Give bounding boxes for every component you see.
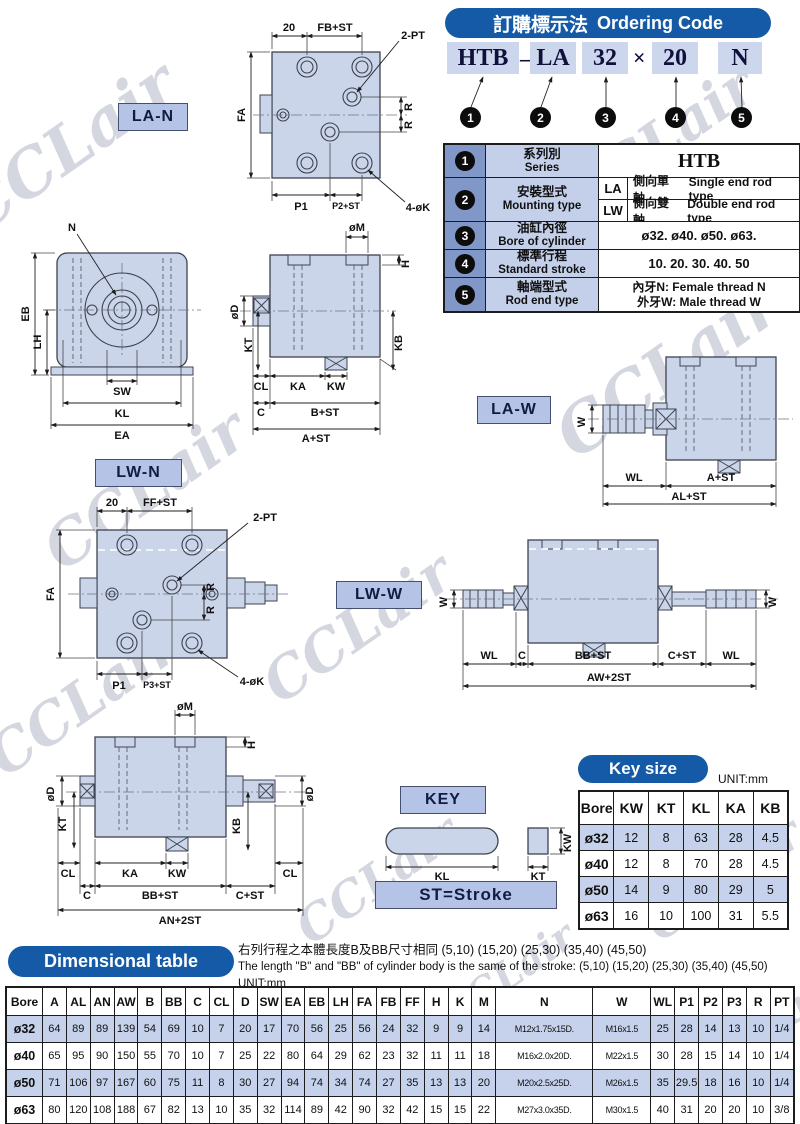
cell: 8 [210,1070,234,1097]
col-header: SW [257,987,281,1016]
diagram-lw-side-view: øM H øD øD KT KB CL KA KW CL C BB+ST C+S… [18,698,330,928]
spec-num: 3 [445,222,486,249]
diagram-label-la-n: LA-N [118,103,188,131]
dim-label: P1 [112,680,125,692]
cell: 89 [66,1016,90,1043]
dim-label: LH [32,335,44,350]
cell: 55 [138,1043,162,1070]
side-tab-left [80,578,97,608]
dim-label: KB [393,335,405,351]
cell: 139 [114,1016,138,1043]
cell: 108 [90,1097,114,1124]
cell: 42 [400,1097,424,1124]
cell: 20 [722,1097,746,1124]
code-times: × [633,45,646,71]
cell: 32 [400,1016,424,1043]
cell: 31 [718,903,753,930]
ordering-code-title: 訂購標示法 Ordering Code [445,8,771,38]
cell: 67 [138,1097,162,1124]
dim-label: CL [61,868,76,880]
dim-label: R [403,121,415,129]
cell: 3/8 [770,1097,794,1124]
cell: 95 [66,1043,90,1070]
cylinder-body [270,255,380,357]
spec-value: HTB [599,145,799,177]
side-tab-right [227,578,245,608]
dimensional-table-title: Dimensional table [8,946,234,977]
cell: 7 [210,1016,234,1043]
arrow-lines [471,77,742,107]
spec-label: 標準行程Standard stroke [486,250,599,277]
cell: 14 [699,1016,723,1043]
cell: 106 [66,1070,90,1097]
ordering-bullet-1: 1 [460,107,481,128]
ordering-bullet-2: 2 [530,107,551,128]
dim-label: 2-PT [253,512,277,524]
diagram-la-n-top-view: 20 FB+ST 2-PT FA R R P1 P2+ST 4-øK [215,5,445,217]
dim-label: AW+2ST [587,672,632,684]
cell: 56 [305,1016,329,1043]
cell: M27x3.0x35D. [496,1097,593,1124]
cell: 10 [649,903,684,930]
col-header: KB [753,791,788,825]
col-header: D [233,987,257,1016]
cell: 10 [186,1043,210,1070]
cell: 4.5 [753,825,788,851]
cell: 25 [329,1016,353,1043]
diagram-label-lw-w: LW-W [336,581,422,609]
spec-label: 安裝型式Mounting type [486,178,599,221]
key-size-title: Key size [578,755,708,783]
cell: 13 [722,1016,746,1043]
cell: M16x1.5 [593,1016,651,1043]
cell: 30 [233,1070,257,1097]
cell: 31 [675,1097,699,1124]
col-header: CL [210,987,234,1016]
cell: 82 [162,1097,186,1124]
cell: 65 [43,1043,67,1070]
cell: 90 [90,1043,114,1070]
code-bore: 32 [582,42,628,74]
header-row: BoreAALANAWBBBCCLDSWEAEBLHFAFBFFHKMNWWLP… [6,987,794,1016]
diagram-la-n-side-view: øM H øD KT CL KA KW KB C B+ST A+ST [228,213,430,465]
key-shape [386,828,498,854]
row-label: ø32 [579,825,614,851]
header-row: BoreKWKTKLKAKB [579,791,788,825]
col-header: P2 [699,987,723,1016]
dim-label: BB+ST [575,650,612,662]
col-header: EB [305,987,329,1016]
cell: 25 [233,1043,257,1070]
row-label: ø40 [6,1043,43,1070]
code-mounting: LA [530,42,576,74]
dim-label: C+ST [668,650,697,662]
cell: 29 [718,877,753,903]
cell: 10 [746,1043,770,1070]
dim-label: 2-PT [401,30,425,42]
col-header: EA [281,987,305,1016]
cell: 167 [114,1070,138,1097]
cell: 89 [90,1016,114,1043]
cell: 13 [186,1097,210,1124]
col-header: BB [162,987,186,1016]
cell: 9 [448,1016,472,1043]
cell: 4.5 [753,851,788,877]
cell: 30 [651,1043,675,1070]
spec-row-mounting: 2 安裝型式Mounting type LA 側向單軸Single end ro… [445,178,799,222]
dim-label: KW [327,381,346,393]
dim-label: KT [243,337,255,352]
col-header: W [593,987,651,1016]
dim-label: WL [625,472,642,484]
dim-label: FA [45,587,57,601]
cell: 27 [377,1070,401,1097]
cell: 74 [353,1070,377,1097]
cell: 11 [448,1043,472,1070]
cell: 94 [281,1070,305,1097]
dim-label: B+ST [311,407,340,419]
ordering-bullet-4: 4 [665,107,686,128]
cell: 7 [210,1043,234,1070]
cell: 10 [746,1070,770,1097]
dim-label: EA [114,430,129,442]
cell: 114 [281,1097,305,1124]
diagram-lw-n-top-view: 20 FF+ST 2-PT FA R R P1 P3+ST 4-øK [20,455,312,707]
dim-label: CL [254,381,269,393]
stroke-note: ST=Stroke [375,881,557,909]
spec-value: LA 側向單軸Single end rod type LW 側向雙軸Double… [599,178,799,221]
cell: 20 [699,1097,723,1124]
spec-num: 2 [445,178,486,221]
table-row: ø507110697167607511830279474347427351313… [6,1070,794,1097]
cell: 28 [718,825,753,851]
cell: 20 [233,1016,257,1043]
spec-label: 系列別Series [486,145,599,177]
dim-label: C [257,407,265,419]
col-header: B [138,987,162,1016]
dim-label: R [205,583,217,591]
cell: 16 [722,1070,746,1097]
spec-num: 5 [445,278,486,311]
spec-value: 內牙N: Female thread N 外牙W: Male thread W [599,278,799,311]
cell: M20x2.5x25D. [496,1070,593,1097]
dim-label: øM [349,222,365,234]
dim-label: C+ST [236,890,265,902]
cell: 27 [257,1070,281,1097]
dim-label: FF+ST [143,497,177,509]
table-row: ø32648989139546910720177056255624329914M… [6,1016,794,1043]
cell: 54 [138,1016,162,1043]
dim-label: P3+ST [143,680,171,690]
table-row: ø638012010818867821310353211489429032421… [6,1097,794,1124]
cell: 23 [377,1043,401,1070]
dim-label: P1 [294,201,307,213]
cell: 35 [651,1070,675,1097]
cell: 1/4 [770,1016,794,1043]
dim-label: AL+ST [671,491,706,503]
dim-label: øD [229,305,241,320]
cell: 22 [257,1043,281,1070]
series-spec-table: 1 系列別Series HTB 2 安裝型式Mounting type LA 側… [443,143,800,313]
cell: 18 [699,1070,723,1097]
code-stroke: 20 [652,42,698,74]
diagram-front-view: N EB LH SW KL EA [15,218,240,450]
col-header: FA [353,987,377,1016]
diagram-label-la-w: LA-W [477,396,551,424]
dim-label: A+ST [302,433,331,445]
col-header: M [472,987,496,1016]
dim-label: EB [20,306,32,321]
diagram-label-key: KEY [400,786,486,814]
cell: 28 [675,1016,699,1043]
cell: 89 [305,1097,329,1124]
base-plate [51,367,193,375]
cell: 70 [162,1043,186,1070]
cell: 75 [162,1070,186,1097]
cell: 80 [281,1043,305,1070]
dimensional-note: 右列行程之本體長度B及BB尺寸相同 (5,10) (15,20) (25,30)… [238,941,798,992]
cell: 9 [424,1016,448,1043]
cell: 34 [329,1070,353,1097]
cell: 150 [114,1043,138,1070]
dim-label: BB+ST [142,890,179,902]
cell: 16 [614,903,649,930]
cell: M22x1.5 [593,1043,651,1070]
cell: 22 [472,1097,496,1124]
cell: 11 [186,1070,210,1097]
cell: M30x1.5 [593,1097,651,1124]
cell: 63 [683,825,718,851]
col-header: N [496,987,593,1016]
cell: M26x1.5 [593,1070,651,1097]
cell: 12 [614,851,649,877]
note-zh: 右列行程之本體長度B及BB尺寸相同 (5,10) (15,20) (25,30)… [238,941,798,959]
spec-label: 軸端型式Rod end type [486,278,599,311]
dim-label: SW [113,386,131,398]
dim-label: R [403,103,415,111]
cell: 120 [66,1097,90,1124]
cell: 14 [472,1016,496,1043]
col-header: H [424,987,448,1016]
cell: 14 [614,877,649,903]
row-label: ø50 [579,877,614,903]
diagram-lw-w-view: W WL C BB+ST C+ST WL W AW+2ST [428,538,800,700]
cell: 28 [675,1043,699,1070]
cell: 90 [353,1097,377,1124]
dim-label: KA [122,868,138,880]
cell: 5 [753,877,788,903]
dim-label: H [246,741,258,749]
cell: 10 [186,1016,210,1043]
ordering-title-en: Ordering Code [597,13,723,34]
dimensional-table: BoreAALANAWBBBCCLDSWEAEBLHFAFBFFHKMNWWLP… [5,986,795,1124]
dim-label: FA [236,108,248,122]
cell: 12 [614,825,649,851]
row-label: ø40 [579,851,614,877]
dim-label: KT [57,816,69,831]
cell: 70 [683,851,718,877]
cell: 8 [649,851,684,877]
cell: 17 [257,1016,281,1043]
col-header: P3 [722,987,746,1016]
side-tab [260,95,272,133]
table-row: ø406595901505570107252280642962233211111… [6,1043,794,1070]
ordering-bullet-3: 3 [595,107,616,128]
dim-label: 20 [283,22,295,34]
cell: 15 [424,1097,448,1124]
row-label: ø32 [6,1016,43,1043]
cylinder-body [528,540,658,643]
spec-row-rodend: 5 軸端型式Rod end type 內牙N: Female thread N … [445,278,799,311]
mounting-lw: LW 側向雙軸Double end rod type [599,200,799,221]
cell: 29 [329,1043,353,1070]
cell: 56 [353,1016,377,1043]
dim-label: KL [115,408,130,420]
dim-label: C [83,890,91,902]
col-header: R [746,987,770,1016]
dim-label: C [518,650,526,662]
cell: 100 [683,903,718,930]
cell: 71 [43,1070,67,1097]
cell: 97 [90,1070,114,1097]
cell: 35 [233,1097,257,1124]
cylinder-body [95,737,226,837]
diagram-label-lw-n: LW-N [95,459,182,487]
dim-label: WL [722,650,739,662]
spec-row-bore: 3 油缸內徑Bore of cylinder ø32. ø40. ø50. ø6… [445,222,799,250]
dim-label: øM [177,701,193,713]
dim-label: R [205,606,217,614]
cell: 11 [424,1043,448,1070]
row-label: ø63 [6,1097,43,1124]
col-header: Bore [579,791,614,825]
cell: 1/4 [770,1043,794,1070]
dim-label: W [767,596,779,607]
dim-label: 20 [106,497,118,509]
ordering-bullet-5: 5 [731,107,752,128]
col-header: Bore [6,987,43,1016]
spec-row-series: 1 系列別Series HTB [445,145,799,178]
cell: M12x1.75x15D. [496,1016,593,1043]
key-section [528,828,548,854]
col-header: KW [614,791,649,825]
cell: 28 [718,851,753,877]
cell: 15 [448,1097,472,1124]
col-header: PT [770,987,794,1016]
cell: 42 [329,1097,353,1124]
cell: 32 [400,1043,424,1070]
spec-label: 油缸內徑Bore of cylinder [486,222,599,249]
cell: M16x2.0x20D. [496,1043,593,1070]
col-header: AN [90,987,114,1016]
cell: 40 [651,1097,675,1124]
dim-label: W [438,596,450,607]
col-header: AW [114,987,138,1016]
cell: 13 [448,1070,472,1097]
dim-label: A+ST [707,472,736,484]
dim-label: 4-øK [240,676,265,688]
cell: 80 [683,877,718,903]
cell: 5.5 [753,903,788,930]
col-header: K [448,987,472,1016]
code-rodend: N [718,42,762,74]
cell: 18 [472,1043,496,1070]
dim-label: KA [290,381,306,393]
col-header: KA [718,791,753,825]
spec-value: ø32. ø40. ø50. ø63. [599,222,799,249]
cell: 9 [649,877,684,903]
dim-label: KW [168,868,187,880]
dim-label: FB+ST [317,22,352,34]
col-header: A [43,987,67,1016]
ordering-arrows [440,72,800,110]
dim-label: KB [231,818,243,834]
table-row: ø5014980295 [579,877,788,903]
cell: 8 [649,825,684,851]
dim-label: N [68,222,76,234]
cell: 24 [377,1016,401,1043]
col-header: KT [649,791,684,825]
spec-num: 4 [445,250,486,277]
cell: 14 [722,1043,746,1070]
dim-label: W [576,416,588,427]
dim-label: P2+ST [332,201,360,211]
cell: 62 [353,1043,377,1070]
col-header: FB [377,987,401,1016]
cell: 10 [210,1097,234,1124]
table-row: ø631610100315.5 [579,903,788,930]
cell: 188 [114,1097,138,1124]
dim-label: WL [480,650,497,662]
rod-tab-right [226,776,243,806]
code-series: HTB [447,42,519,74]
cell: 60 [138,1070,162,1097]
cell: 69 [162,1016,186,1043]
cell: 32 [377,1097,401,1124]
col-header: LH [329,987,353,1016]
diagram-la-w-view: W WL A+ST AL+ST [568,333,800,510]
spec-num: 1 [445,145,486,177]
cell: 1/4 [770,1070,794,1097]
cell: 70 [281,1016,305,1043]
cell: 32 [257,1097,281,1124]
col-header: KL [683,791,718,825]
spec-row-stroke: 4 標準行程Standard stroke 10. 20. 30. 40. 50 [445,250,799,278]
row-label: ø63 [579,903,614,930]
cylinder-body [666,357,776,460]
cell: 25 [651,1016,675,1043]
table-row: ø3212863284.5 [579,825,788,851]
table-row: ø4012870284.5 [579,851,788,877]
cell: 80 [43,1097,67,1124]
cell: 74 [305,1070,329,1097]
cell: 29.5 [675,1070,699,1097]
col-header: WL [651,987,675,1016]
col-header: C [186,987,210,1016]
rod-right [658,586,756,610]
dim-label: KW [562,833,574,852]
cell: 13 [424,1070,448,1097]
dim-label: AN+2ST [159,915,202,927]
cell: 10 [746,1016,770,1043]
catalog-page: CCLair CCLair CCLair CCLair CCLair CCLai… [0,0,800,1124]
row-label: ø50 [6,1070,43,1097]
dim-label: H [400,260,412,268]
cell: 64 [43,1016,67,1043]
cell: 15 [699,1043,723,1070]
rod-left [463,586,528,610]
spec-value: 10. 20. 30. 40. 50 [599,250,799,277]
